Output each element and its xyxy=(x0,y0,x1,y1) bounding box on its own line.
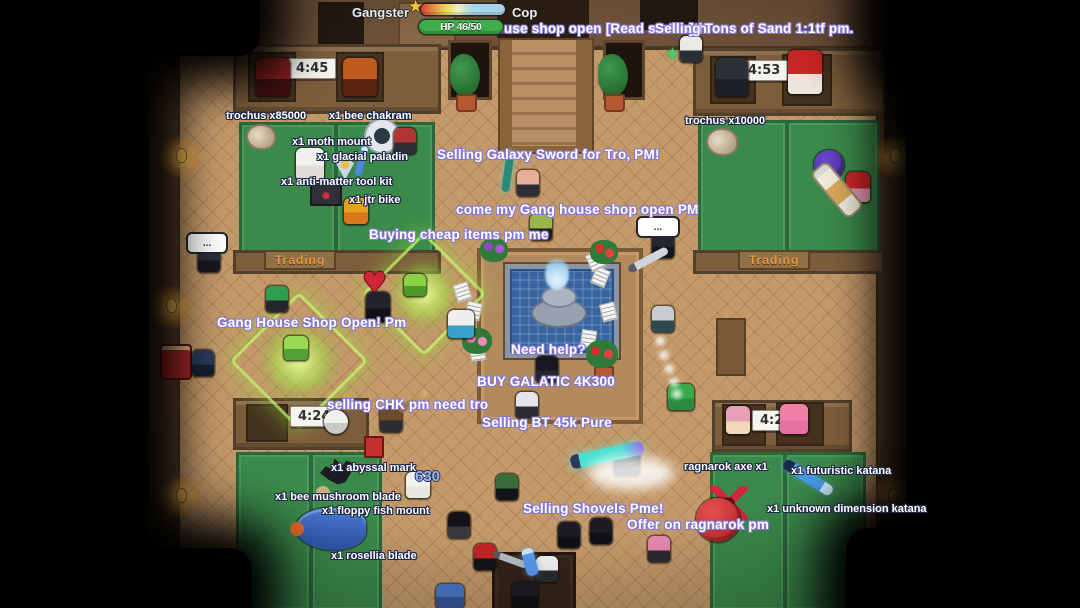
flower-pot-red xyxy=(586,340,618,368)
price-tag: 630 xyxy=(415,468,440,485)
vignette-left xyxy=(0,0,148,608)
speech-bubble: ... xyxy=(186,232,228,254)
hp-text: HP 46/50 xyxy=(440,22,482,33)
flame-icon xyxy=(888,488,899,503)
item-label: x1 rosellia blade xyxy=(331,550,417,562)
item-label: x1 jtr bike xyxy=(349,194,400,206)
wall-lamp-icon xyxy=(872,134,918,180)
flame-icon xyxy=(176,488,187,503)
game-viewport[interactable]: 4:45 Trading 4:53 Trading 4:24 4:24 xyxy=(0,0,1080,608)
chat-message: BUY GALATIC 4K300 xyxy=(477,374,615,389)
trochus-shell-icon[interactable] xyxy=(246,124,276,150)
character-unicycle-rider[interactable] xyxy=(652,306,674,332)
green-star-weapon-icon: ✦ xyxy=(664,42,681,66)
item-label: x1 unknown dimension katana xyxy=(767,503,927,515)
fish-lips-icon xyxy=(290,522,304,536)
chat-message: Buying cheap items pm me xyxy=(369,227,549,242)
chat-message: Offer on ragnarok pm xyxy=(627,517,769,532)
item-label: x1 moth mount xyxy=(292,136,371,148)
item-label: x1 futuristic katana xyxy=(791,465,891,477)
trail-dot xyxy=(672,389,682,399)
vignette-corner xyxy=(884,0,1080,70)
plant-pot xyxy=(604,94,625,112)
vignette-right xyxy=(906,0,1080,608)
character-green-hat[interactable] xyxy=(266,286,288,312)
character-demon[interactable] xyxy=(256,58,290,96)
trail-dot xyxy=(659,350,669,360)
character-pink-hair[interactable] xyxy=(648,536,670,562)
trail-dot xyxy=(664,364,674,374)
item-label: ragnarok axe x1 xyxy=(684,461,768,473)
character-pink-bear[interactable] xyxy=(780,404,808,434)
speech-bubble: ... xyxy=(636,216,680,238)
creature-green-pet[interactable] xyxy=(284,336,308,360)
entrance-stairs[interactable] xyxy=(512,40,576,146)
chat-message: Selling BT 45k Pure xyxy=(482,415,612,430)
character-bomb-head[interactable] xyxy=(324,410,348,434)
chat-message: selling CHK pm need tro xyxy=(327,397,488,412)
plant-pot xyxy=(456,94,477,112)
character-dark[interactable] xyxy=(558,522,580,548)
item-label: x1 glacial paladin xyxy=(317,151,408,163)
item-label: trochus x10000 xyxy=(685,115,765,127)
player-class: Cop xyxy=(512,5,537,20)
chat-message: Gang House Shop Open! Pm xyxy=(217,315,406,330)
item-label: x1 bee chakram xyxy=(329,110,412,122)
trochus-shell-icon[interactable] xyxy=(706,128,738,156)
character-hooded[interactable] xyxy=(716,58,748,96)
character-drummer[interactable] xyxy=(192,350,214,376)
hp-bar: HP 46/50 xyxy=(419,20,503,34)
item-label: x1 anti-matter tool kit xyxy=(281,176,392,188)
xp-bar xyxy=(421,4,505,15)
trading-sign: Trading xyxy=(738,250,810,270)
star-icon: ★ xyxy=(408,0,423,17)
particle-cloud xyxy=(588,456,674,490)
fountain-spray xyxy=(545,258,569,290)
character-piglet-swordseller[interactable] xyxy=(517,170,539,196)
creature-green-pet[interactable] xyxy=(404,274,426,296)
character-dark[interactable] xyxy=(590,518,612,544)
character-bunny-trader[interactable] xyxy=(448,310,474,338)
character-demon-orange[interactable] xyxy=(343,58,377,96)
item-label: x1 floppy fish mount xyxy=(322,505,430,517)
trading-sign: Trading xyxy=(264,250,336,270)
wall-lamp-icon xyxy=(158,134,204,180)
character-skull-scout[interactable] xyxy=(680,36,702,62)
player-name: Gangster xyxy=(352,5,409,20)
item-label: trochus x85000 xyxy=(226,110,306,122)
flame-icon xyxy=(890,148,901,163)
character-pink-girl[interactable] xyxy=(726,406,750,434)
booth-top-left-timer: 4:45 xyxy=(288,58,336,79)
chat-message: Selling Shovels Pme! xyxy=(523,501,664,516)
wall-lamp-icon xyxy=(158,474,204,520)
character-cat-swordsman[interactable] xyxy=(536,556,558,582)
drum-item[interactable] xyxy=(160,344,192,380)
character-green-hair[interactable] xyxy=(496,474,518,500)
character-dark[interactable] xyxy=(512,582,538,608)
chat-message: come my Gang house shop open PM xyxy=(456,202,698,217)
chat-message: Need help? xyxy=(511,342,586,357)
potted-plant-leaves xyxy=(598,54,628,96)
chat-message: Selling Tons of Sand 1:1tf pm. xyxy=(655,21,854,36)
flame-icon xyxy=(166,298,177,313)
bench xyxy=(716,318,746,376)
trail-dot xyxy=(655,336,665,346)
character-blue-shark[interactable] xyxy=(436,584,464,608)
item-label: x1 bee mushroom blade xyxy=(275,491,401,503)
chat-message: Selling Galaxy Sword for Tro, PM! xyxy=(437,147,660,162)
wall-lamp-icon xyxy=(148,284,194,330)
character-santa-skull[interactable] xyxy=(788,50,822,94)
item-label: x1 abyssal mark xyxy=(331,462,416,474)
flame-icon xyxy=(176,148,187,163)
trail-dot xyxy=(669,377,679,387)
heart-balloon-icon: ♥ xyxy=(362,266,387,299)
potted-plant-leaves xyxy=(450,54,480,96)
gas-can-item[interactable] xyxy=(364,436,384,458)
flower-pot-red xyxy=(590,240,618,264)
character-black-hair[interactable] xyxy=(448,512,470,538)
